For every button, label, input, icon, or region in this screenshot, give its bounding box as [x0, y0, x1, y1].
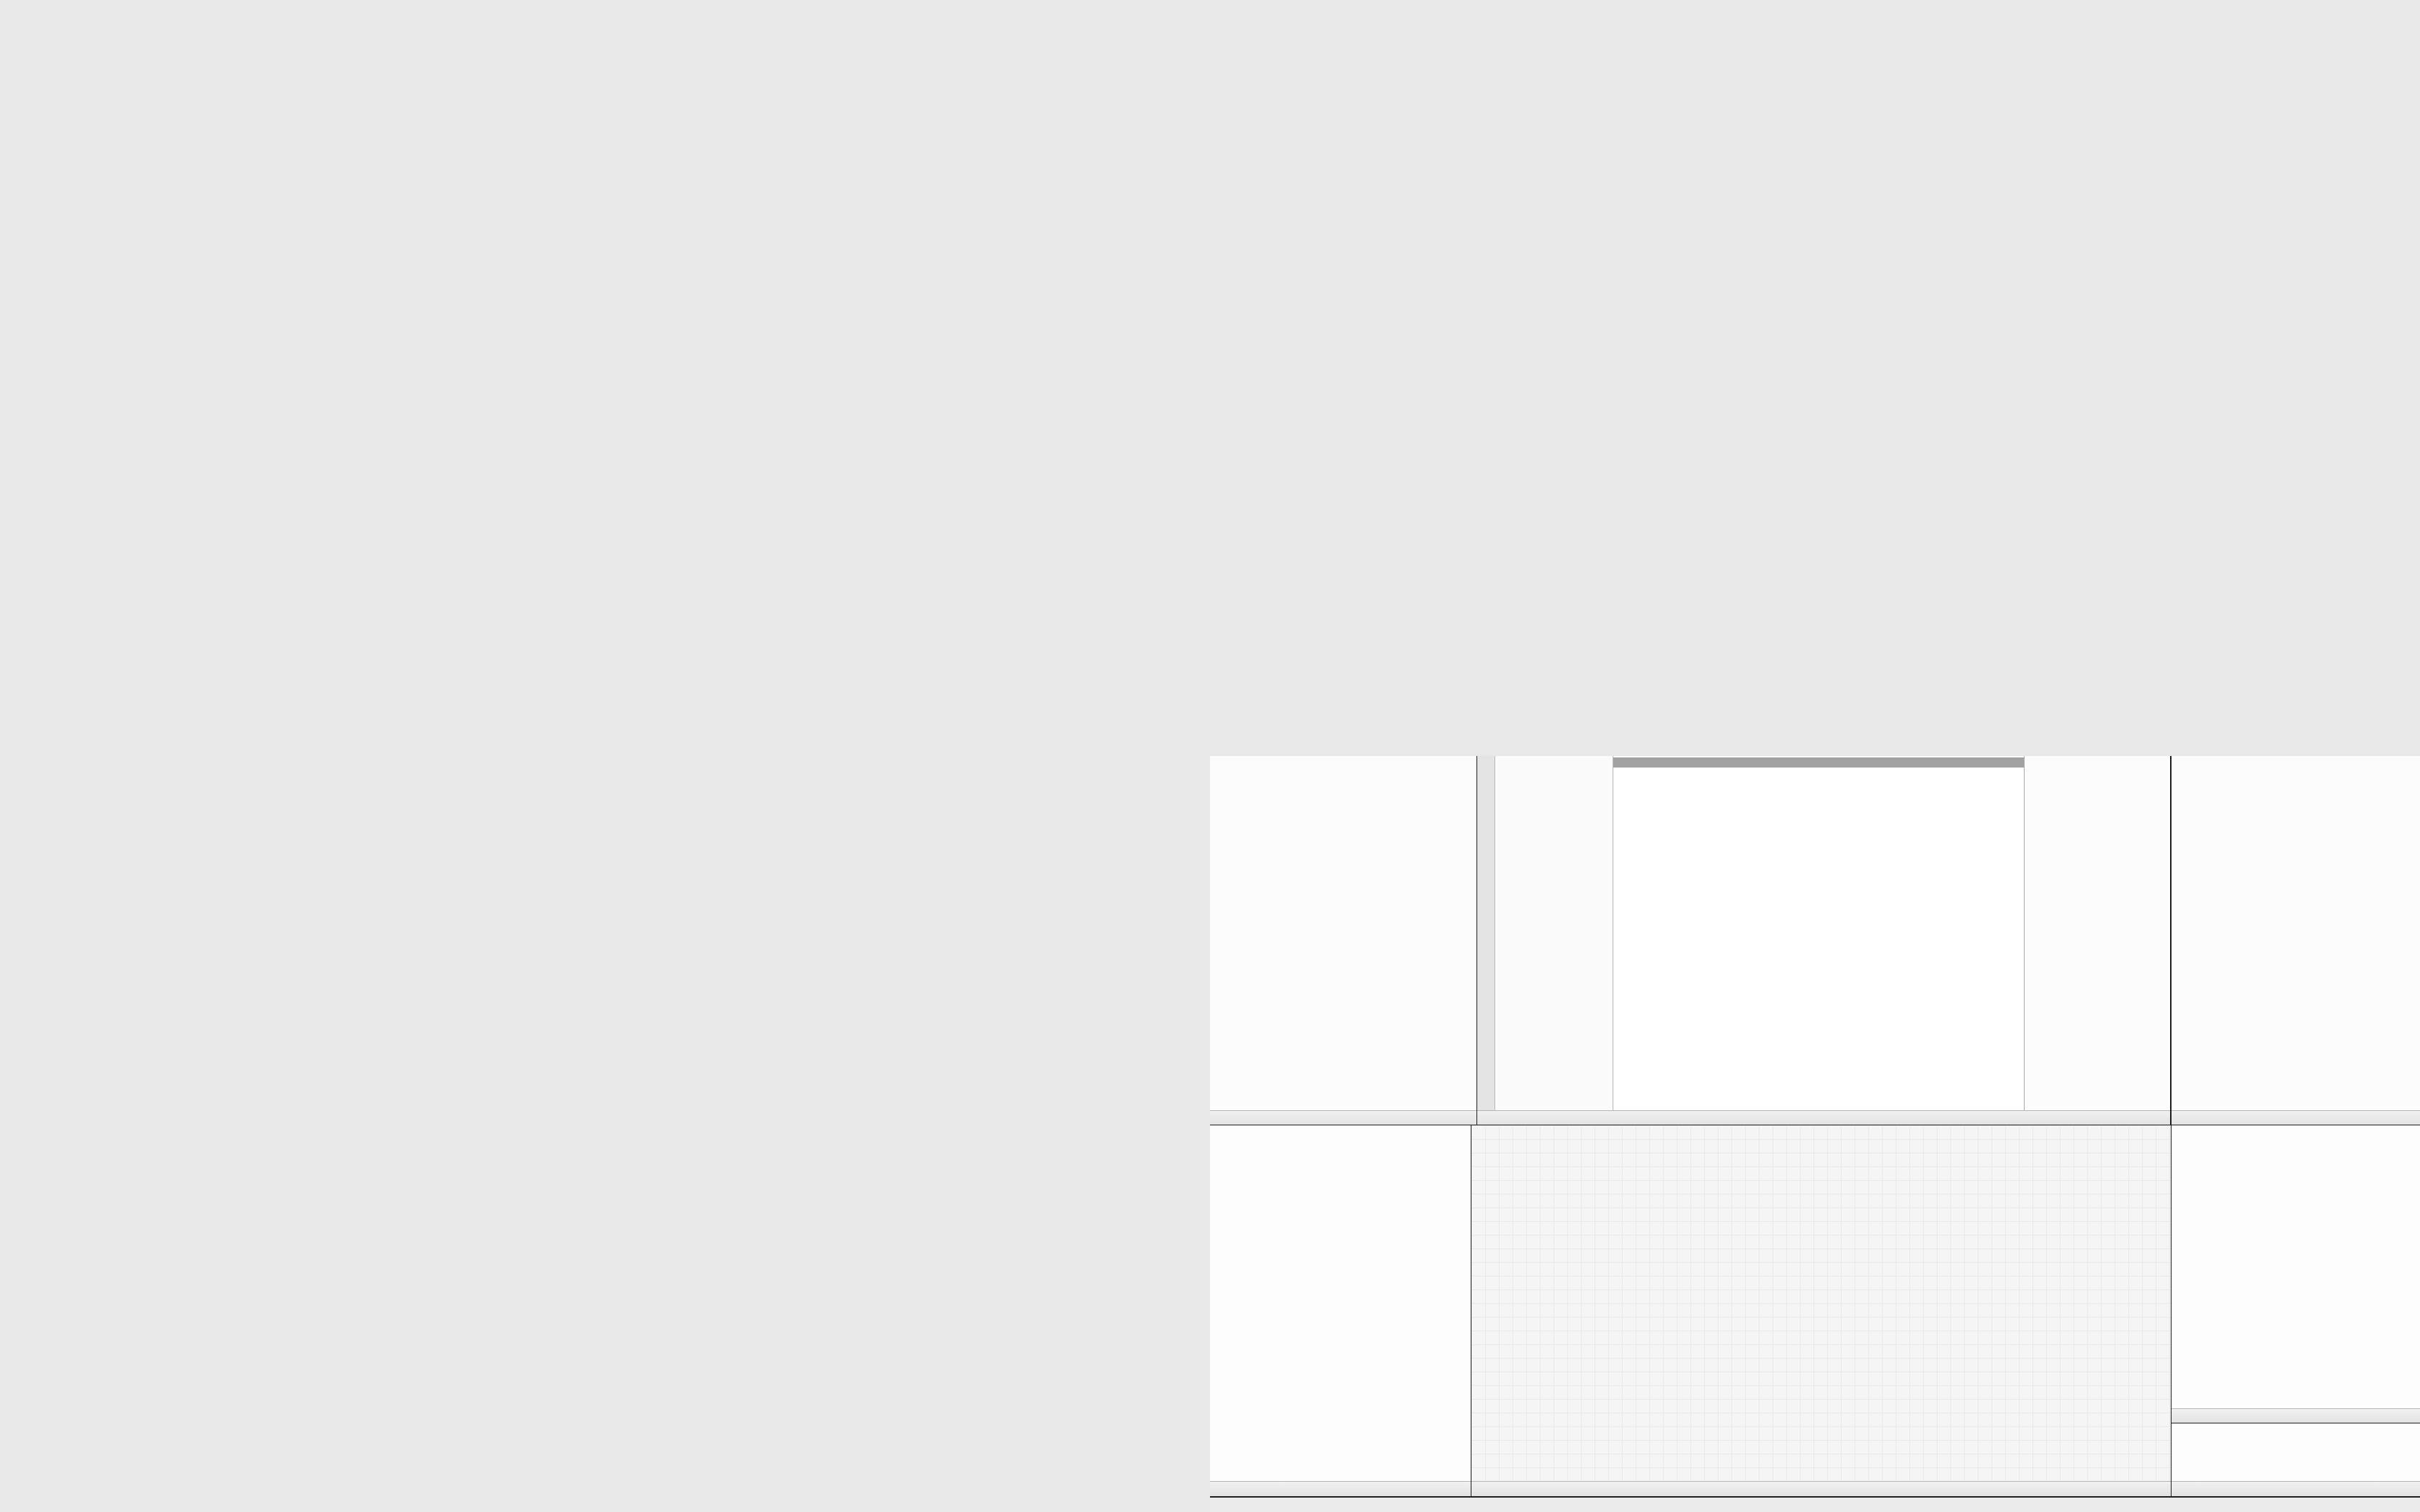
outliner-2 — [2172, 1125, 2420, 1423]
outliner-header — [2172, 1481, 2420, 1496]
properties-header — [1210, 1110, 1477, 1125]
modifier-properties-panel — [2172, 756, 2420, 1110]
viewport-render-preview[interactable] — [1613, 756, 2024, 1110]
outliner-tree — [1210, 1125, 1471, 1481]
viewport-3d — [1477, 756, 2170, 1125]
info-bar — [1210, 1496, 2420, 1512]
properties-header — [2172, 1110, 2420, 1125]
properties-editor-modifiers — [2172, 756, 2420, 1125]
quadrant-top-right-mirrored — [1210, 0, 2420, 756]
outliner-tree — [2172, 1125, 2420, 1408]
quadrant-bottom-left-mirrored — [0, 756, 1210, 1512]
quadrant-bottom-right-original — [1210, 756, 2420, 1512]
viewport-n-panel — [2024, 756, 2170, 1110]
outliner-1 — [1210, 1125, 1471, 1496]
node-editor — [1471, 1125, 2172, 1496]
outliner-header — [2172, 1408, 2420, 1423]
tool-shelf — [1495, 756, 1613, 1110]
render-status-strip — [1613, 757, 2024, 768]
render-properties-panel — [1210, 756, 1477, 1110]
quadrant-top-left-mirrored — [0, 0, 1210, 756]
node-editor-header — [1471, 1481, 2172, 1496]
outliner-header — [1210, 1481, 1471, 1496]
properties-editor-render — [1210, 756, 1477, 1125]
blender-kaleidoscope-screenshot — [0, 0, 2420, 1512]
viewport-header — [1477, 1110, 2170, 1125]
outliner-3-empty — [2172, 1423, 2420, 1496]
outliner-empty — [2172, 1423, 2420, 1481]
node-graph[interactable] — [1471, 1125, 2172, 1481]
tool-shelf-tabs — [1477, 756, 1495, 1110]
